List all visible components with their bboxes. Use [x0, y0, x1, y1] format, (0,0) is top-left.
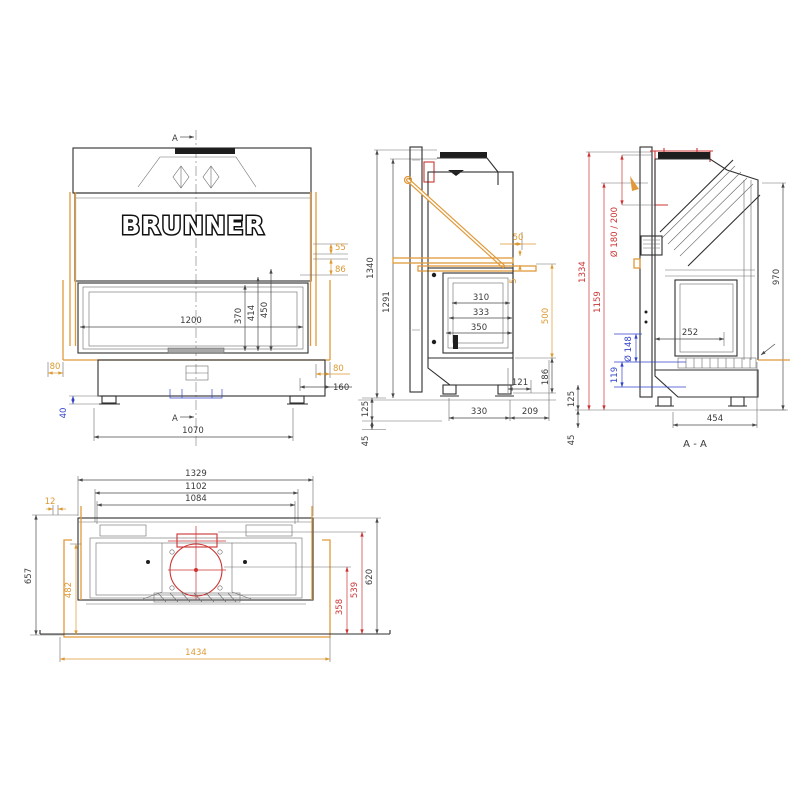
section-marker-top: A	[172, 134, 178, 144]
dim-h1159: 1159	[593, 291, 603, 313]
leg-right	[290, 396, 304, 403]
dim-h414: 414	[247, 305, 257, 321]
leg-left	[102, 396, 116, 403]
dim-620: 620	[365, 569, 375, 585]
brand-logo: BRUNNER	[121, 211, 265, 240]
dim-539: 539	[350, 582, 360, 598]
dim-h1291: 1291	[382, 291, 392, 313]
frame-rails-plan-orange	[81, 506, 312, 600]
dim-119: 119	[610, 367, 620, 383]
dim-121: 121	[512, 378, 528, 388]
front-view: A A BRUNNER 1200 370 414 450	[48, 130, 352, 448]
drawing-canvas: A A BRUNNER 1200 370 414 450	[0, 0, 800, 800]
dim-186: 186	[541, 369, 551, 385]
dim-h450: 450	[260, 302, 270, 318]
dim-358: 358	[335, 599, 345, 615]
flue-collar-plan	[177, 534, 217, 547]
dim-o80-left: 80	[50, 362, 61, 372]
dim-h370: 370	[234, 308, 244, 324]
dim-o50: 50	[513, 233, 524, 243]
body-side	[428, 172, 513, 268]
dim-o55: 55	[335, 243, 346, 253]
dim-o500: 500	[541, 308, 551, 324]
surround-plan-orange	[64, 540, 330, 637]
orange-detail	[634, 259, 640, 268]
door-handle	[168, 348, 224, 353]
dim-w1102: 1102	[185, 482, 207, 492]
dim-454: 454	[707, 414, 723, 424]
dim-w1329: 1329	[185, 469, 207, 479]
dim-g310: 310	[473, 293, 489, 303]
dim-125-side: 125	[361, 401, 371, 417]
flow-arrow-orange	[630, 176, 639, 191]
dim-air-inlet: Ø 148	[623, 336, 634, 362]
dim-w1434: 1434	[185, 648, 207, 658]
damper-cap-section	[658, 152, 710, 159]
dim-g333: 333	[473, 308, 489, 318]
dim-160: 160	[333, 383, 349, 393]
pedestal-side	[428, 358, 513, 385]
dim-45-side: 45	[361, 436, 371, 447]
dim-o5: 5	[509, 278, 519, 283]
dim-b40: 40	[59, 408, 69, 419]
dim-657: 657	[24, 568, 34, 584]
damper-cap	[175, 148, 235, 154]
dim-209: 209	[522, 407, 538, 417]
dim-o12: 12	[45, 497, 56, 507]
base-front	[98, 360, 325, 396]
dim-glass-width: 1200	[180, 316, 202, 326]
dim-970: 970	[772, 269, 782, 285]
dim-o86: 86	[335, 265, 346, 275]
section-label: A - A	[683, 439, 707, 450]
dim-45-section: 45	[567, 435, 577, 446]
technical-drawing-page: A A BRUNNER 1200 370 414 450	[0, 0, 800, 800]
pedestal-section	[655, 370, 758, 397]
dim-h1340: 1340	[366, 257, 376, 279]
dim-330: 330	[471, 407, 487, 417]
dim-482: 482	[64, 582, 74, 598]
dim-o80-right: 80	[333, 364, 344, 374]
plan-view: 1329 1102 1084 12 657 482	[24, 469, 390, 662]
dim-flue-diameter: Ø 180 / 200	[609, 207, 620, 257]
body-plan	[78, 518, 313, 600]
door-track-left	[100, 525, 146, 536]
dim-g350: 350	[471, 323, 487, 333]
rear-panel-section	[640, 147, 652, 397]
side-view: 1340 1291 310 333 350	[358, 147, 556, 446]
hearth-line	[40, 630, 390, 634]
grate-row	[154, 593, 240, 602]
damper-cap-side	[440, 152, 487, 158]
section-view: 1334 1159 Ø 180 / 200 252 Ø 148 119	[567, 147, 790, 450]
door-track-right	[246, 525, 292, 536]
hood-front	[73, 148, 311, 193]
dim-base-width: 1070	[182, 426, 204, 436]
section-marker-bottom: A	[172, 414, 178, 424]
dim-h1334: 1334	[578, 261, 588, 283]
dim-252: 252	[682, 328, 698, 338]
dim-125-section: 125	[567, 391, 577, 407]
window-section	[675, 280, 737, 356]
dim-w1084: 1084	[185, 494, 207, 504]
